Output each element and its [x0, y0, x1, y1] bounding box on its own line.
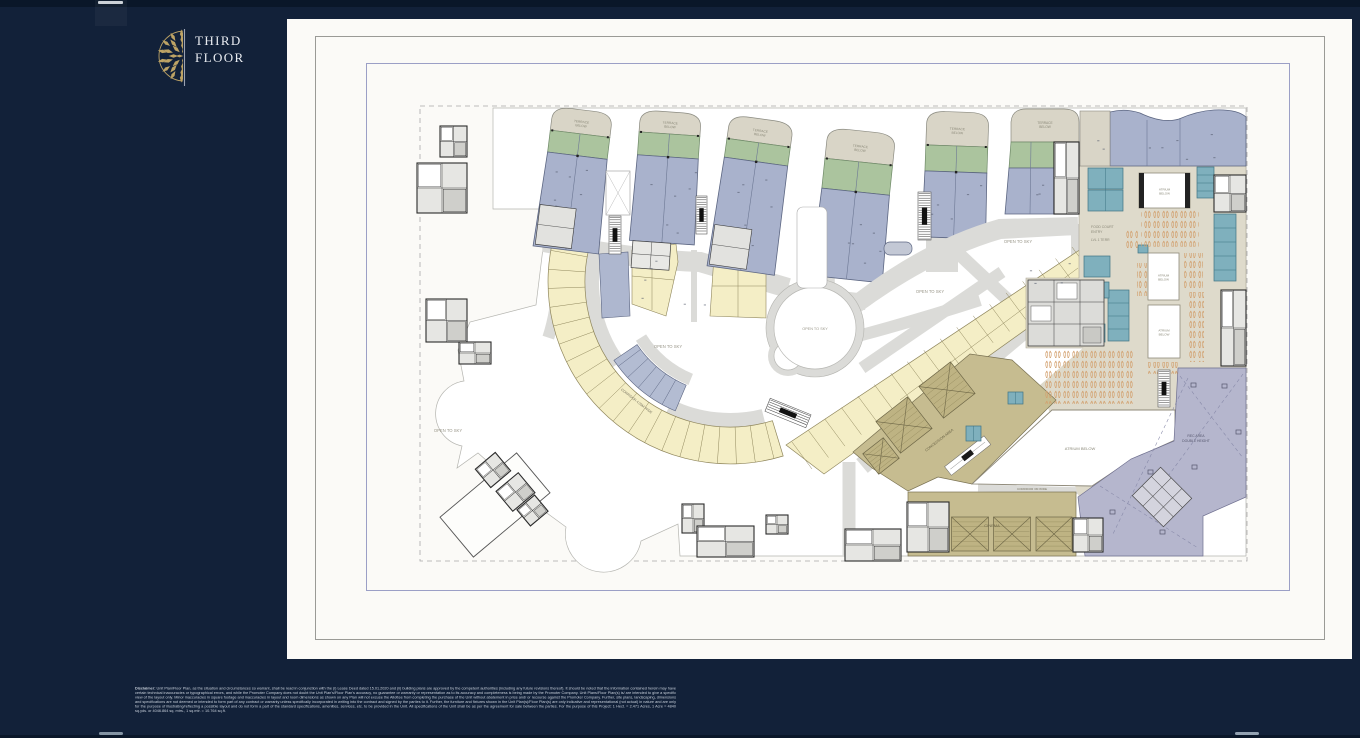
- svg-text:FOOD COURT: FOOD COURT: [1091, 225, 1114, 229]
- svg-text:REC AREA: REC AREA: [1187, 434, 1205, 438]
- svg-text:BELOW: BELOW: [951, 131, 963, 135]
- svg-text:OPEN TO SKY: OPEN TO SKY: [434, 428, 462, 433]
- svg-text:BELOW: BELOW: [1158, 278, 1169, 282]
- svg-text:BELOW: BELOW: [1159, 333, 1170, 337]
- svg-text:CINEMA: CINEMA: [984, 523, 1000, 528]
- svg-text:OPEN TO SKY: OPEN TO SKY: [654, 344, 682, 349]
- svg-text:CORRIDOR 3M WIDE: CORRIDOR 3M WIDE: [1017, 487, 1047, 491]
- svg-text:LVL 1 TERR: LVL 1 TERR: [1091, 238, 1110, 242]
- svg-text:BELOW: BELOW: [1159, 192, 1170, 196]
- svg-text:OPEN TO SKY: OPEN TO SKY: [1004, 239, 1032, 244]
- svg-text:BELOW: BELOW: [1039, 125, 1051, 129]
- svg-text:BELOW: BELOW: [664, 125, 676, 130]
- svg-text:ATRIUM BELOW: ATRIUM BELOW: [1065, 446, 1096, 451]
- svg-text:OPEN TO SKY: OPEN TO SKY: [802, 327, 828, 331]
- svg-text:OPEN TO SKY: OPEN TO SKY: [916, 289, 944, 294]
- svg-text:ENTRY: ENTRY: [1091, 230, 1103, 234]
- svg-text:DOUBLE HEIGHT: DOUBLE HEIGHT: [1182, 439, 1210, 443]
